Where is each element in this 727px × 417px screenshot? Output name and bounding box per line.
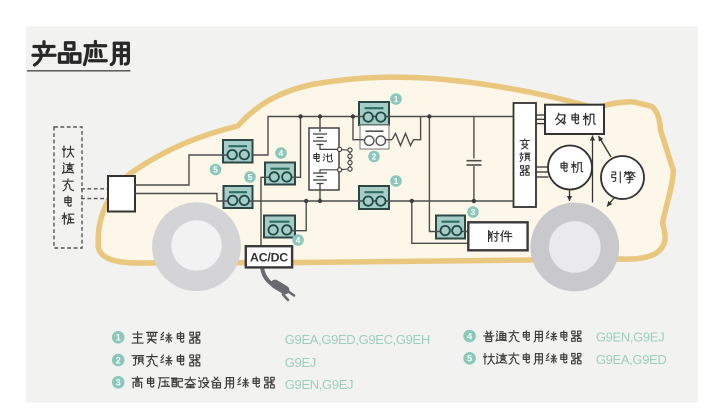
svg-text:5: 5	[213, 165, 218, 175]
svg-text:4: 4	[467, 331, 472, 341]
svg-text:G9EJ: G9EJ	[285, 355, 316, 370]
svg-text:4: 4	[279, 148, 284, 158]
svg-text:4: 4	[296, 235, 301, 245]
svg-text:G9EN,G9EJ: G9EN,G9EJ	[285, 377, 353, 392]
svg-text:3: 3	[116, 378, 121, 388]
svg-text:AC/DC: AC/DC	[250, 250, 288, 264]
svg-text:2: 2	[116, 355, 121, 365]
svg-text:1: 1	[394, 94, 399, 104]
svg-text:G9EN,G9EJ: G9EN,G9EJ	[596, 329, 664, 344]
svg-text:1: 1	[394, 176, 399, 186]
svg-text:1: 1	[116, 333, 121, 343]
svg-text:5: 5	[248, 172, 253, 182]
svg-text:5: 5	[467, 354, 472, 364]
svg-text:2: 2	[372, 152, 377, 162]
svg-text:3: 3	[471, 207, 476, 217]
svg-text:G9EA,G9ED: G9EA,G9ED	[596, 352, 667, 367]
svg-text:G9EA,G9ED,G9EC,G9EH: G9EA,G9ED,G9EC,G9EH	[285, 332, 430, 347]
